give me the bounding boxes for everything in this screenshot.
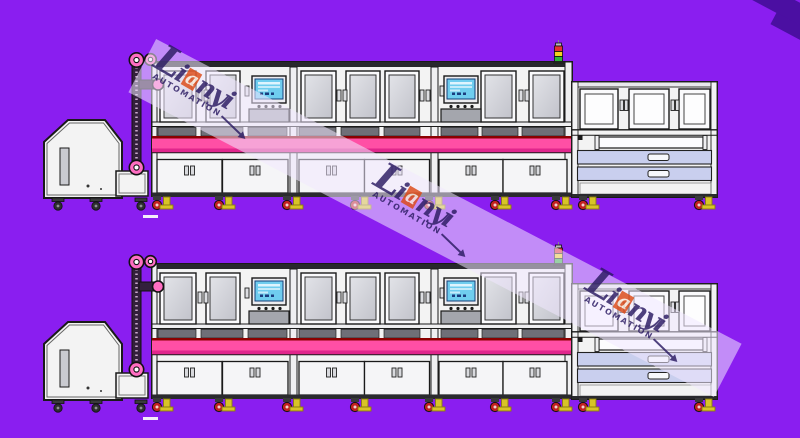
cad-drawing-canvas: Lianyi AUTOMATION Lianyi AUTOMATION Lian…	[0, 0, 800, 438]
